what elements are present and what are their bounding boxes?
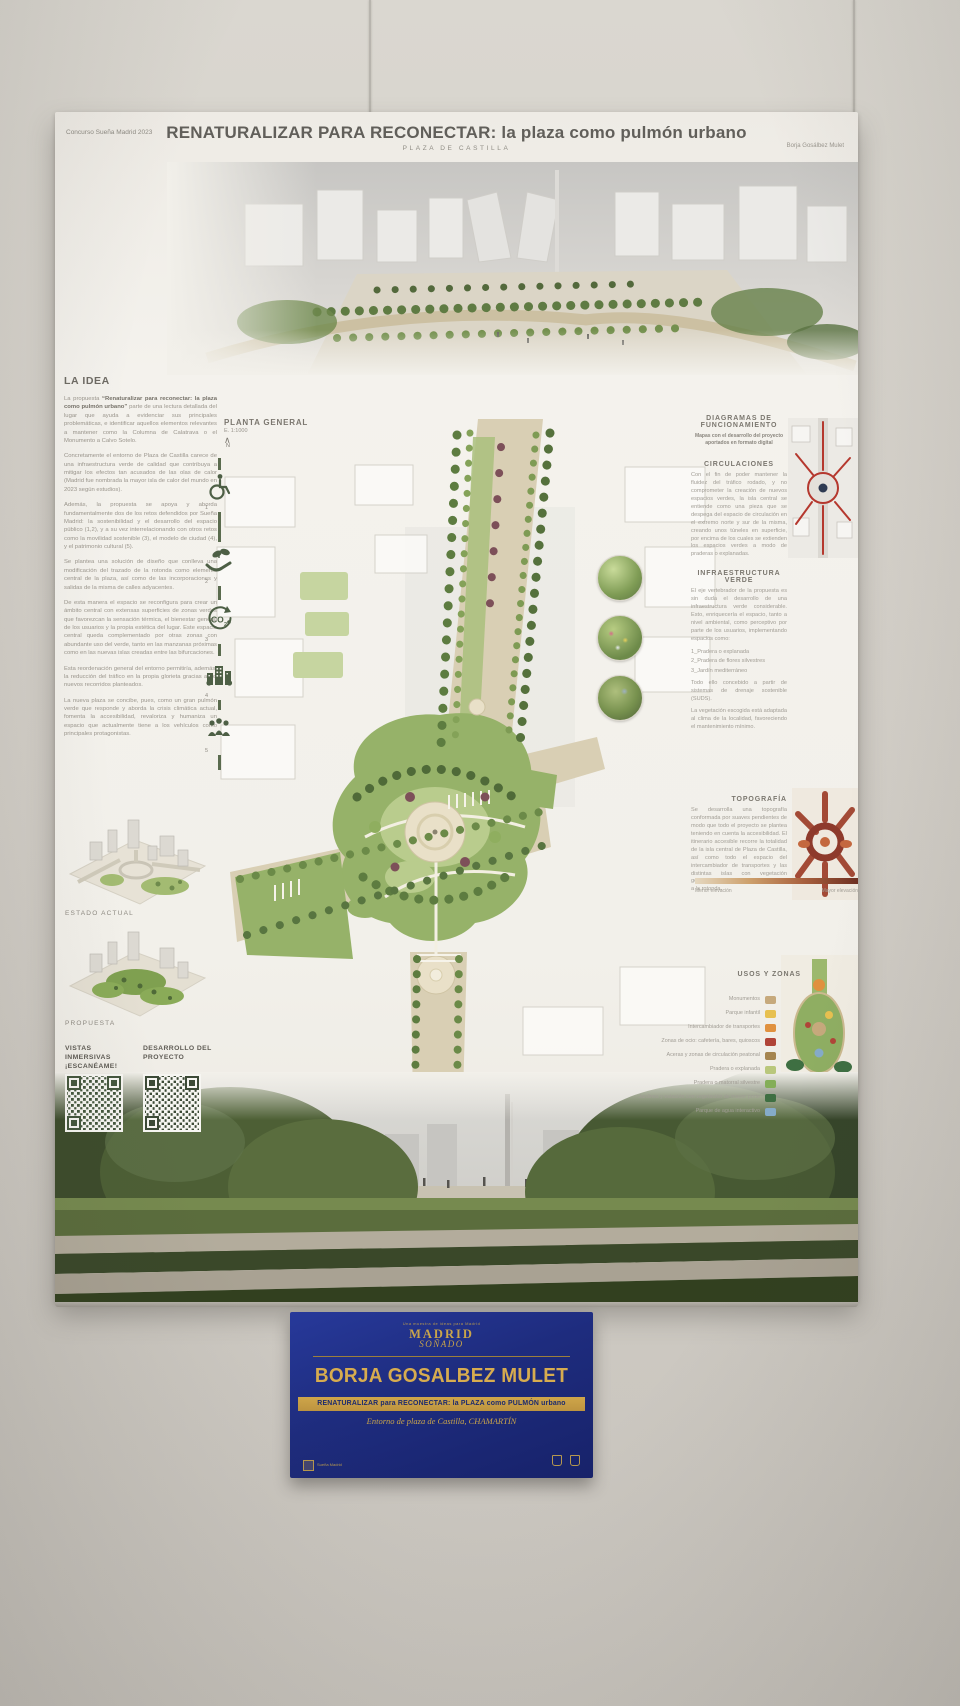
- legend-swatch: [765, 1010, 776, 1018]
- timeline-number: 3: [205, 637, 208, 643]
- estado-actual-label: ESTADO ACTUAL: [65, 910, 134, 917]
- legend-item: Jardines y estación con vegetación de ma…: [635, 1094, 776, 1102]
- legend-swatch: [765, 996, 776, 1004]
- la-idea-paragraph: Concretamente el entorno de Plaza de Cas…: [64, 452, 217, 494]
- la-idea-paragraph: La propuesta “Renaturalizar para reconec…: [64, 395, 217, 445]
- mediterranean-garden-photo-circle: [597, 675, 643, 721]
- infraestructura-body: El eje vertebrador de la propuesta es si…: [691, 588, 787, 644]
- circulation-diagram: [788, 418, 858, 558]
- legend-label: Pradera o explanada: [710, 1066, 760, 1073]
- suena-madrid-logo: Sueña Madrid: [303, 1460, 342, 1471]
- la-idea-section: LA IDEA La propuesta “Renaturalizar para…: [64, 375, 217, 746]
- svg-text:2: 2: [224, 622, 227, 628]
- qr-code-vistas-inmersivas[interactable]: [65, 1074, 123, 1132]
- timeline-segment: [218, 512, 221, 542]
- exhibition-plaque: Una muestra de ideas para Madrid MADRID …: [290, 1312, 593, 1478]
- diagramas-section: DIAGRAMAS DE FUNCIONAMIENTO Mapas con el…: [691, 415, 787, 447]
- legend-swatch: [765, 1052, 776, 1060]
- aerial-render-image: [167, 162, 858, 375]
- legend-swatch: [765, 1080, 776, 1088]
- timeline-number: 1: [205, 505, 208, 511]
- plaque-footer: Sueña Madrid: [303, 1453, 580, 1471]
- timeline-number: 2: [205, 579, 208, 585]
- elevation-high-label: Mayor elevación: [822, 888, 858, 894]
- poster-subtitle: PLAZA DE CASTILLA: [55, 145, 858, 152]
- circulaciones-heading: CIRCULACIONES: [691, 461, 787, 468]
- author-name: Borja Gosálbez Mulet: [787, 143, 844, 149]
- diagramas-heading: DIAGRAMAS DE FUNCIONAMIENTO: [691, 415, 787, 429]
- wildflower-photo-circle: [597, 615, 643, 661]
- legend-item: Parque de agua interactivo: [635, 1108, 776, 1116]
- legend-item: Pradera o matorral silvestre: [635, 1080, 776, 1088]
- qr-code-desarrollo-proyecto[interactable]: [143, 1074, 201, 1132]
- usos-y-zonas-heading-wrap: USOS Y ZONAS: [655, 971, 801, 978]
- legend-item: Aceras y zonas de circulación peatonal: [635, 1052, 776, 1060]
- legend-label: Monumentos: [729, 996, 760, 1003]
- plaque-divider: [313, 1356, 570, 1357]
- topografia-heading: TOPOGRAFÍA: [691, 796, 787, 803]
- legend-label: Pradera o matorral silvestre: [694, 1080, 760, 1087]
- green-spaces-list: 1_Pradera o explanada 2_Pradera de flore…: [691, 648, 787, 677]
- legend-item: Intercambiador de transportes: [635, 1024, 776, 1032]
- wall-panel-seam: [853, 0, 855, 118]
- legend-item: Pradera o explanada: [635, 1066, 776, 1074]
- legend-item: Zonas de ocio: cafetería, bares, quiosco…: [635, 1038, 776, 1046]
- list-item: 3_Jardín mediterráneo: [691, 667, 787, 677]
- meadow-photo-circle: [597, 555, 643, 601]
- co2-cycle-icon: CO 2: [204, 604, 234, 634]
- madrid-crest-icon: [552, 1455, 562, 1466]
- propuesta-axon-image: [60, 926, 210, 1018]
- community-people-icon: [204, 714, 234, 744]
- madrid-sonado-logo-line2: SOÑADO: [419, 1340, 464, 1349]
- plan-scale: E. 1:1000: [224, 428, 308, 434]
- list-item: 1_Pradera o explanada: [691, 648, 787, 658]
- timeline-segment: [218, 586, 221, 600]
- la-idea-heading: LA IDEA: [64, 375, 217, 387]
- timeline-segment: [218, 644, 221, 656]
- la-idea-paragraph: La nueva plaza se concibe, pues, como un…: [64, 697, 217, 739]
- diagramas-note: Mapas con el desarrollo del proyecto apo…: [691, 433, 787, 447]
- legend-label: Parque de agua interactivo: [696, 1108, 760, 1115]
- wheelchair-icon: [204, 472, 234, 502]
- list-item: 2_Pradera de flores silvestres: [691, 657, 787, 667]
- ayuntamiento-logo-icon: [570, 1455, 580, 1466]
- wall-panel-seam: [369, 0, 371, 114]
- poster-title: RENATURALIZAR PARA RECONECTAR: la plaza …: [55, 123, 858, 143]
- timeline-number: 4: [205, 693, 208, 699]
- qr2-heading: DESARROLLO DEL PROYECTO: [143, 1044, 215, 1062]
- legend-swatch: [765, 1038, 776, 1046]
- la-idea-paragraph: De esta manera el espacio se reconfigura…: [64, 599, 217, 658]
- estado-actual-axon-image: [60, 812, 210, 906]
- elevation-low-label: Menor elevación: [695, 888, 732, 894]
- project-title-band: RENATURALIZAR para RECONECTAR: la PLAZA …: [298, 1397, 585, 1411]
- legend-label: Jardines y estación con vegetación de ma…: [638, 1094, 760, 1101]
- infraestructura-heading: INFRAESTRUCTURA VERDE: [691, 570, 787, 584]
- hand-leaf-icon: [204, 546, 234, 576]
- infraestructura-verde-section: INFRAESTRUCTURA VERDE El eje vertebrador…: [691, 570, 787, 732]
- legend-item: Parque infantil: [635, 1010, 776, 1018]
- elevation-gradient-labels: Menor elevación Mayor elevación: [695, 888, 858, 894]
- la-idea-paragraph: Esta reordenación general del entorno pe…: [64, 665, 217, 690]
- infraestructura-body2: Todo ello concebido a partir de sistemas…: [691, 680, 787, 704]
- institution-logos: [548, 1453, 580, 1471]
- legend-swatch: [765, 1094, 776, 1102]
- legend-label: Parque infantil: [726, 1010, 760, 1017]
- legend-label: Intercambiador de transportes: [688, 1024, 760, 1031]
- plan-title: PLANTA GENERAL: [224, 418, 308, 427]
- competition-poster-board: Concurso Sueña Madrid 2023 RENATURALIZAR…: [55, 112, 858, 1302]
- paragraph-text: La propuesta: [64, 396, 102, 402]
- svg-text:CO: CO: [211, 615, 224, 625]
- legend-swatch: [765, 1108, 776, 1116]
- gallery-wall: Concurso Sueña Madrid 2023 RENATURALIZAR…: [0, 0, 960, 1706]
- timeline-segment: [218, 458, 221, 470]
- legend-label: Zonas de ocio: cafetería, bares, quiosco…: [661, 1038, 760, 1045]
- qr1-heading: VISTAS INMERSIVAS ¡ESCANÉAME!: [65, 1044, 137, 1072]
- planta-general-label: PLANTA GENERAL E. 1:1000 ∧ N: [224, 418, 308, 449]
- legend-swatch: [765, 1066, 776, 1074]
- north-letter: N: [226, 443, 308, 449]
- circulaciones-section: CIRCULACIONES Con el fin de poder manten…: [691, 461, 787, 559]
- legend-swatch: [765, 1024, 776, 1032]
- usos-legend: Monumentos Parque infantil Intercambiado…: [635, 996, 776, 1122]
- la-idea-paragraph: Además, la propuesta se apoya y aborda f…: [64, 501, 217, 551]
- la-idea-paragraph: Se plantea una solución de diseño que co…: [64, 558, 217, 592]
- author-plaque-name: BORJA GOSALBEZ MULET: [315, 1365, 568, 1388]
- concept-icons-timeline: 1 2 CO 2 3: [196, 458, 242, 770]
- timeline-number: 5: [205, 748, 208, 754]
- usos-heading: USOS Y ZONAS: [655, 971, 801, 978]
- circulaciones-body: Con el fin de poder mantener la fluidez …: [691, 472, 787, 559]
- elevation-gradient-bar: [695, 878, 858, 884]
- plaque-pretitle: Una muestra de ideas para Madrid: [403, 1321, 481, 1326]
- propuesta-label: PROPUESTA: [65, 1020, 115, 1027]
- timeline-segment: [218, 700, 221, 710]
- infraestructura-body3: La vegetación escogida está adaptada al …: [691, 708, 787, 732]
- suena-madrid-logo-icon: [303, 1460, 314, 1471]
- suena-madrid-logo-text: Sueña Madrid: [317, 1463, 342, 1468]
- legend-label: Aceras y zonas de circulación peatonal: [667, 1052, 761, 1059]
- timeline-segment: [218, 755, 221, 770]
- project-location: Entorno de plaza de Castilla, CHAMARTÍN: [367, 1416, 517, 1426]
- legend-item: Monumentos: [635, 996, 776, 1004]
- green-city-icon: [204, 660, 234, 690]
